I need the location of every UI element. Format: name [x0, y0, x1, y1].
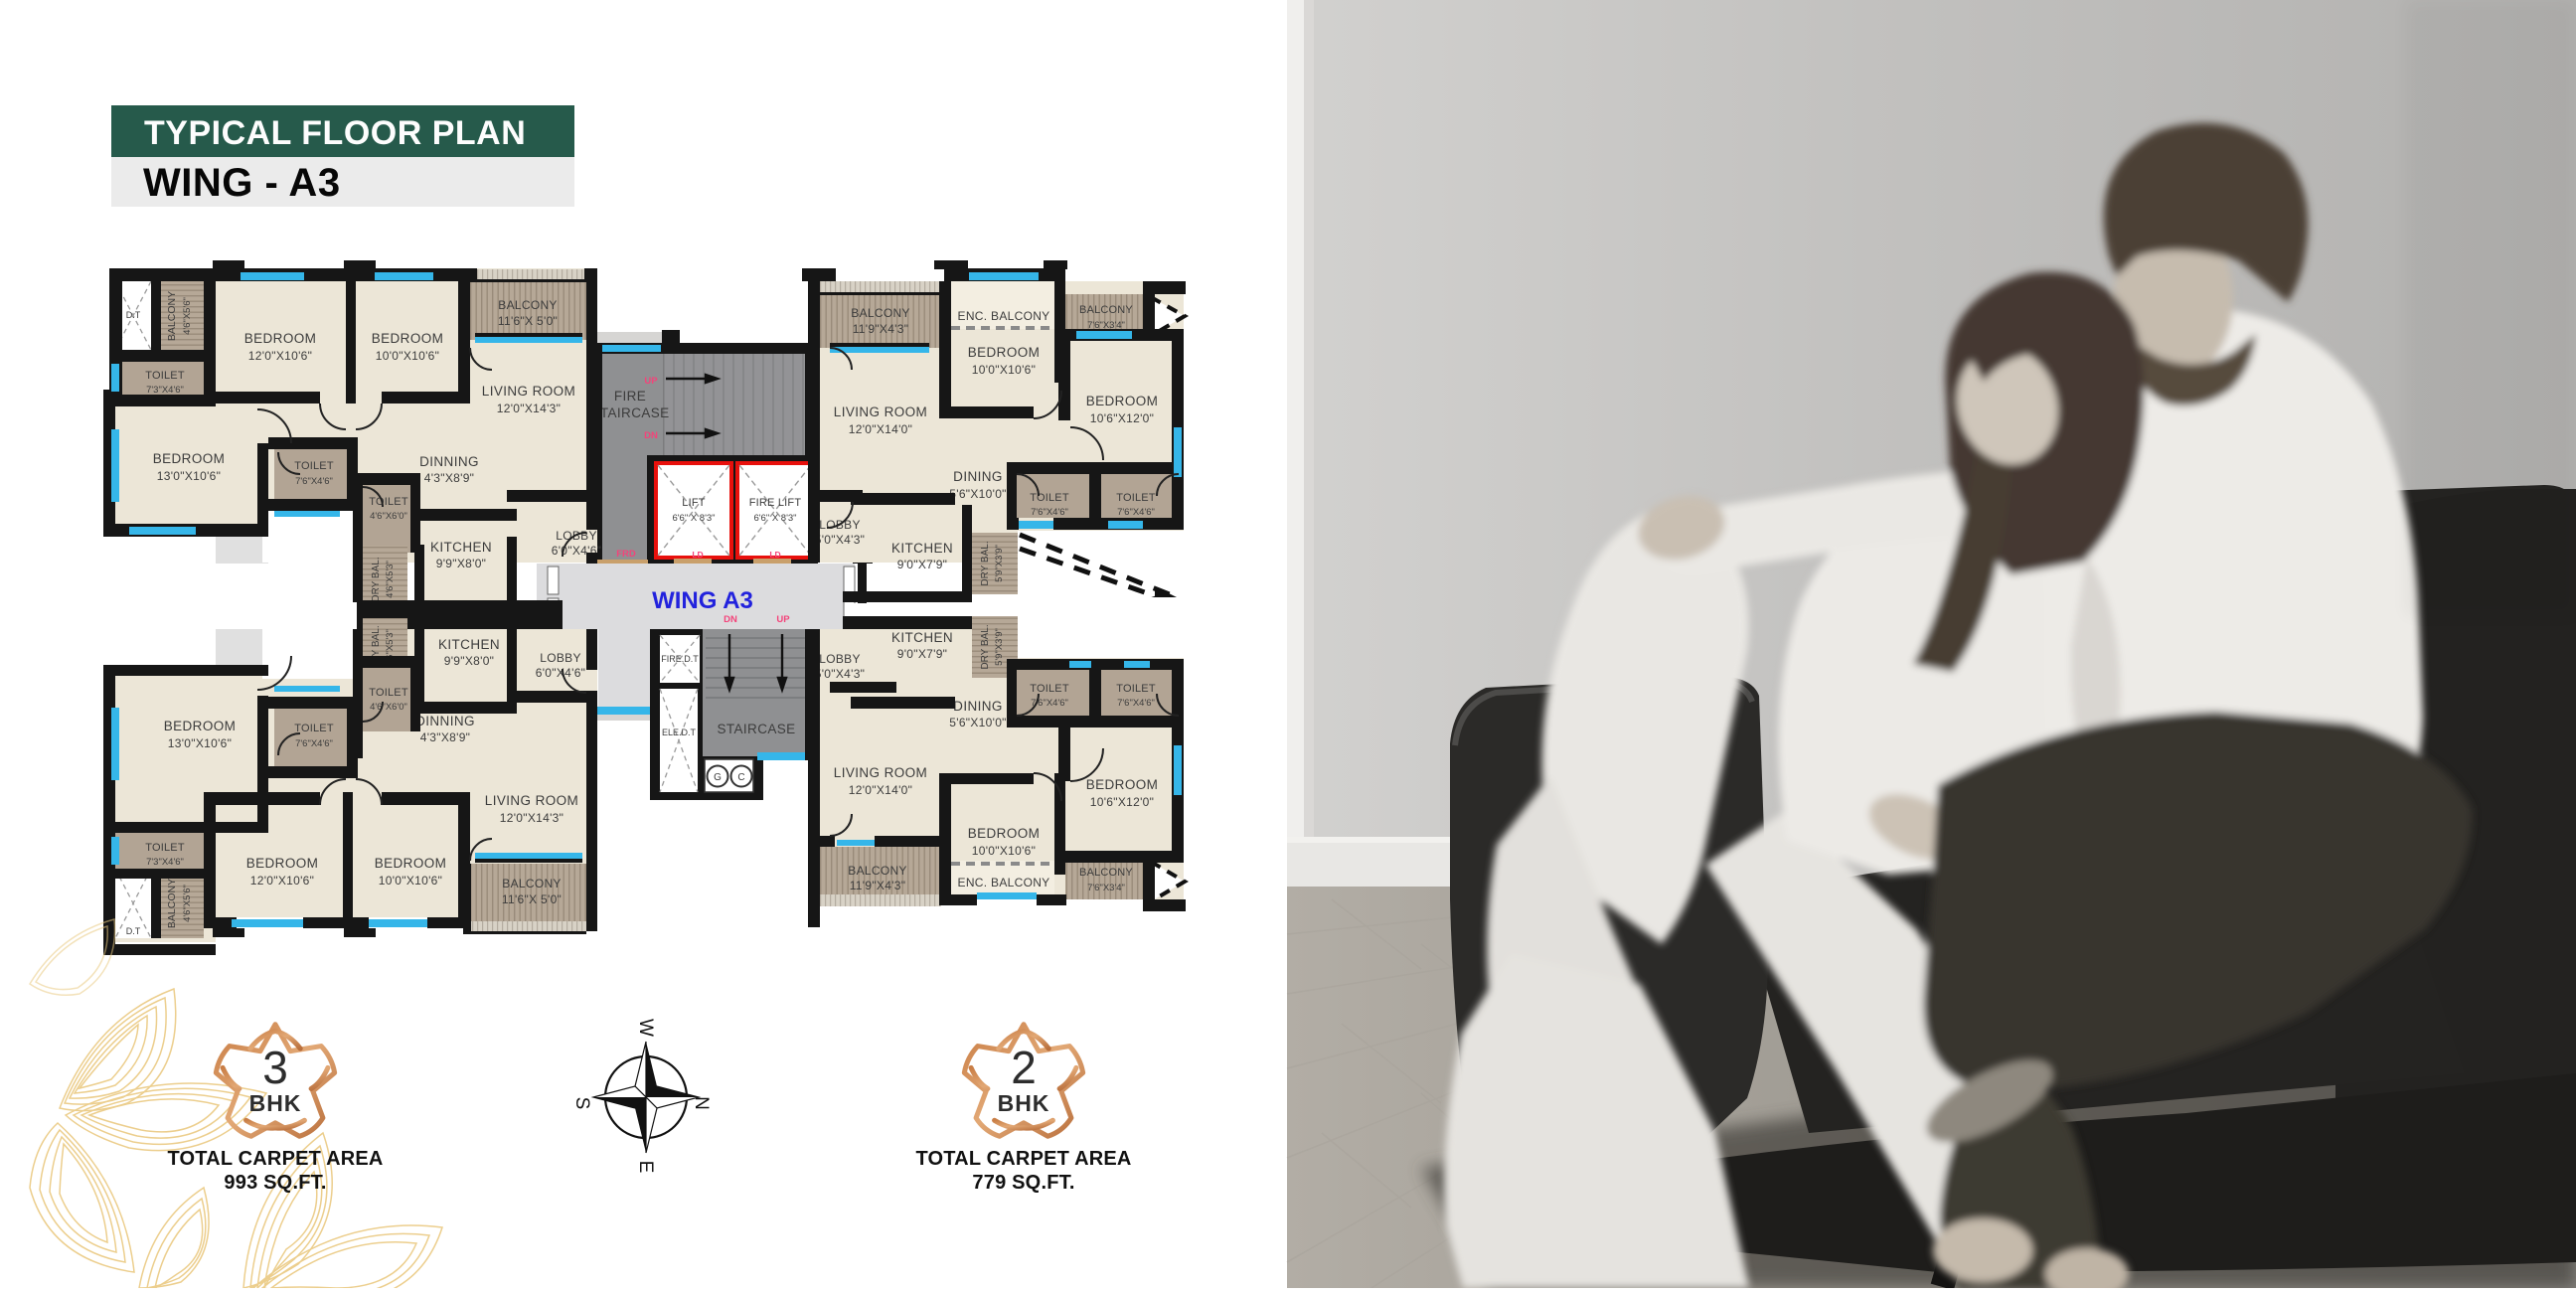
svg-text:LOBBY: LOBBY [540, 651, 581, 665]
svg-text:TOILET: TOILET [1030, 683, 1069, 695]
svg-text:779 SQ.FT.: 779 SQ.FT. [972, 1172, 1074, 1194]
svg-text:C: C [737, 772, 744, 783]
svg-text:BEDROOM: BEDROOM [372, 331, 444, 346]
svg-text:9'0"X7'9": 9'0"X7'9" [897, 558, 948, 571]
svg-text:9'0"X7'9": 9'0"X7'9" [897, 647, 948, 661]
svg-text:DINING: DINING [953, 469, 1003, 484]
svg-text:12'0"X10'6": 12'0"X10'6" [250, 874, 314, 888]
svg-text:E: E [635, 1161, 656, 1174]
svg-text:10'6"X12'0": 10'6"X12'0" [1090, 795, 1154, 809]
svg-text:BALCONY: BALCONY [848, 864, 906, 878]
svg-text:BEDROOM: BEDROOM [968, 826, 1041, 841]
svg-text:DN: DN [724, 614, 737, 625]
svg-text:STAIRCASE: STAIRCASE [590, 405, 669, 420]
svg-text:5'9"X3'9": 5'9"X3'9" [994, 628, 1005, 666]
svg-text:TYPICAL FLOOR PLAN: TYPICAL FLOOR PLAN [144, 114, 526, 152]
svg-text:12'0"X14'3": 12'0"X14'3" [500, 811, 563, 825]
svg-text:ELE.D.T: ELE.D.T [662, 727, 697, 737]
svg-text:6'6" X 8'3": 6'6" X 8'3" [753, 513, 796, 524]
svg-text:12'0"X14'3": 12'0"X14'3" [497, 402, 561, 415]
svg-text:LIVING ROOM: LIVING ROOM [482, 384, 575, 399]
svg-text:TOILET: TOILET [369, 496, 408, 508]
svg-text:G: G [714, 772, 722, 783]
svg-text:9'9"X8'0": 9'9"X8'0" [436, 557, 487, 570]
svg-text:ENC. BALCONY: ENC. BALCONY [958, 309, 1050, 323]
svg-text:7'6"X4'6": 7'6"X4'6" [1117, 507, 1155, 518]
svg-text:KITCHEN: KITCHEN [891, 541, 953, 556]
svg-text:993 SQ.FT.: 993 SQ.FT. [224, 1172, 326, 1194]
svg-text:BEDROOM: BEDROOM [1086, 394, 1159, 408]
svg-text:BEDROOM: BEDROOM [153, 451, 226, 466]
svg-text:BHK: BHK [998, 1090, 1050, 1116]
svg-text:D.T: D.T [126, 310, 141, 320]
svg-text:5'6"X10'0": 5'6"X10'0" [949, 487, 1006, 501]
svg-text:BEDROOM: BEDROOM [164, 719, 237, 733]
svg-text:BALCONY: BALCONY [166, 291, 178, 341]
svg-text:LIVING ROOM: LIVING ROOM [485, 793, 578, 808]
svg-text:TOILET: TOILET [294, 723, 334, 734]
svg-text:7'6"X4'6": 7'6"X4'6" [1117, 698, 1155, 709]
svg-text:TOILET: TOILET [1116, 492, 1156, 504]
svg-text:BALCONY: BALCONY [851, 306, 909, 320]
svg-text:6'6" X 8'3": 6'6" X 8'3" [672, 513, 715, 524]
svg-text:FIRE: FIRE [614, 389, 646, 404]
svg-text:11'6"X 5'0": 11'6"X 5'0" [498, 314, 558, 328]
svg-text:3: 3 [262, 1042, 288, 1093]
svg-text:TOILET: TOILET [1030, 492, 1069, 504]
svg-text:N: N [691, 1096, 712, 1110]
svg-text:BEDROOM: BEDROOM [246, 856, 319, 871]
svg-text:13'0"X10'6": 13'0"X10'6" [157, 469, 221, 483]
svg-text:FIRE LIFT: FIRE LIFT [749, 497, 802, 509]
svg-text:DN: DN [644, 430, 658, 441]
svg-text:TOILET: TOILET [1116, 683, 1156, 695]
svg-text:UP: UP [776, 614, 790, 625]
svg-text:WING A3: WING A3 [652, 587, 753, 614]
svg-text:LD: LD [769, 550, 780, 560]
svg-text:4'6"X5'6": 4'6"X5'6" [182, 297, 193, 335]
svg-text:BALCONY: BALCONY [1079, 867, 1133, 879]
svg-text:KITCHEN: KITCHEN [430, 540, 492, 555]
svg-text:BALCONY: BALCONY [498, 298, 557, 312]
svg-text:FRD: FRD [616, 549, 636, 560]
svg-text:DINNING: DINNING [419, 454, 479, 469]
svg-text:BEDROOM: BEDROOM [244, 331, 317, 346]
svg-text:DRY BAL.: DRY BAL. [980, 541, 991, 585]
svg-text:4'3"X8'9": 4'3"X8'9" [424, 471, 475, 485]
svg-text:12'0"X14'0": 12'0"X14'0" [849, 783, 912, 797]
svg-text:TOILET: TOILET [145, 842, 185, 854]
svg-text:11'6"X 5'0": 11'6"X 5'0" [502, 892, 562, 906]
svg-text:13'0"X10'6": 13'0"X10'6" [168, 736, 232, 750]
svg-text:5'9"X3'9": 5'9"X3'9" [994, 545, 1005, 582]
svg-text:4'6"X6'0": 4'6"X6'0" [370, 511, 407, 522]
svg-text:KITCHEN: KITCHEN [891, 630, 953, 645]
svg-text:TOILET: TOILET [294, 460, 334, 472]
svg-text:DRY BAL.: DRY BAL. [980, 624, 991, 669]
svg-text:DINNING: DINNING [415, 714, 475, 728]
svg-text:5'0"X4'3": 5'0"X4'3" [815, 667, 866, 681]
svg-text:10'0"X10'6": 10'0"X10'6" [972, 844, 1036, 858]
svg-text:4'6"X6'0": 4'6"X6'0" [370, 702, 407, 713]
svg-text:7'6"X4'6": 7'6"X4'6" [1031, 507, 1068, 518]
svg-text:10'6"X12'0": 10'6"X12'0" [1090, 411, 1154, 425]
svg-text:12'0"X14'0": 12'0"X14'0" [849, 422, 912, 436]
svg-text:D.T: D.T [126, 926, 141, 936]
svg-text:TOILET: TOILET [369, 687, 408, 699]
svg-text:W: W [635, 1019, 656, 1037]
svg-text:4'6"X5'6": 4'6"X5'6" [182, 885, 193, 922]
svg-text:BEDROOM: BEDROOM [1086, 777, 1159, 792]
svg-text:10'0"X10'6": 10'0"X10'6" [379, 874, 442, 888]
svg-text:5'0"X4'3": 5'0"X4'3" [815, 533, 866, 547]
svg-text:4'6"X5'3": 4'6"X5'3" [385, 561, 396, 598]
svg-text:TOTAL CARPET AREA: TOTAL CARPET AREA [167, 1148, 383, 1170]
svg-text:7'6"X3'4": 7'6"X3'4" [1087, 883, 1125, 893]
svg-text:11'9"X4'3": 11'9"X4'3" [853, 322, 909, 336]
svg-text:DINING: DINING [953, 699, 1003, 714]
svg-text:11'9"X4'3": 11'9"X4'3" [850, 879, 906, 892]
svg-text:BALCONY: BALCONY [1079, 304, 1133, 316]
svg-text:DRY BAL.: DRY BAL. [371, 557, 382, 601]
svg-text:LD: LD [692, 550, 703, 560]
svg-text:LIVING ROOM: LIVING ROOM [834, 765, 927, 780]
svg-text:KITCHEN: KITCHEN [438, 637, 500, 652]
svg-text:FIRE.D.T: FIRE.D.T [661, 654, 699, 664]
svg-text:TOILET: TOILET [145, 370, 185, 382]
svg-text:7'6"X4'6": 7'6"X4'6" [295, 476, 333, 487]
svg-text:LOBBY: LOBBY [819, 652, 861, 666]
svg-text:BHK: BHK [249, 1090, 302, 1116]
svg-text:2: 2 [1011, 1042, 1037, 1093]
svg-text:7'6"X4'6": 7'6"X4'6" [295, 738, 333, 749]
svg-text:TOTAL CARPET AREA: TOTAL CARPET AREA [915, 1148, 1131, 1170]
svg-text:BEDROOM: BEDROOM [375, 856, 447, 871]
svg-text:9'9"X8'0": 9'9"X8'0" [444, 654, 495, 668]
svg-text:10'0"X10'6": 10'0"X10'6" [376, 349, 439, 363]
svg-text:BEDROOM: BEDROOM [968, 345, 1041, 360]
svg-text:UP: UP [644, 376, 658, 387]
svg-text:10'0"X10'6": 10'0"X10'6" [972, 363, 1036, 377]
svg-text:STAIRCASE: STAIRCASE [717, 722, 795, 736]
svg-text:LIFT: LIFT [682, 497, 705, 509]
svg-text:WING - A3: WING - A3 [143, 161, 341, 205]
svg-text:7'3"X4'6": 7'3"X4'6" [146, 385, 184, 396]
svg-text:BALCONY: BALCONY [166, 879, 178, 928]
svg-text:4'3"X8'9": 4'3"X8'9" [420, 730, 471, 744]
svg-text:7'3"X4'6": 7'3"X4'6" [146, 857, 184, 868]
svg-text:LIVING ROOM: LIVING ROOM [834, 404, 927, 419]
svg-text:12'0"X10'6": 12'0"X10'6" [248, 349, 312, 363]
svg-text:ENC. BALCONY: ENC. BALCONY [958, 876, 1050, 889]
svg-text:S: S [571, 1097, 592, 1110]
svg-text:6'0"X4'6": 6'0"X4'6" [536, 666, 586, 680]
svg-text:BALCONY: BALCONY [502, 877, 561, 890]
svg-text:5'6"X10'0": 5'6"X10'0" [949, 716, 1006, 729]
